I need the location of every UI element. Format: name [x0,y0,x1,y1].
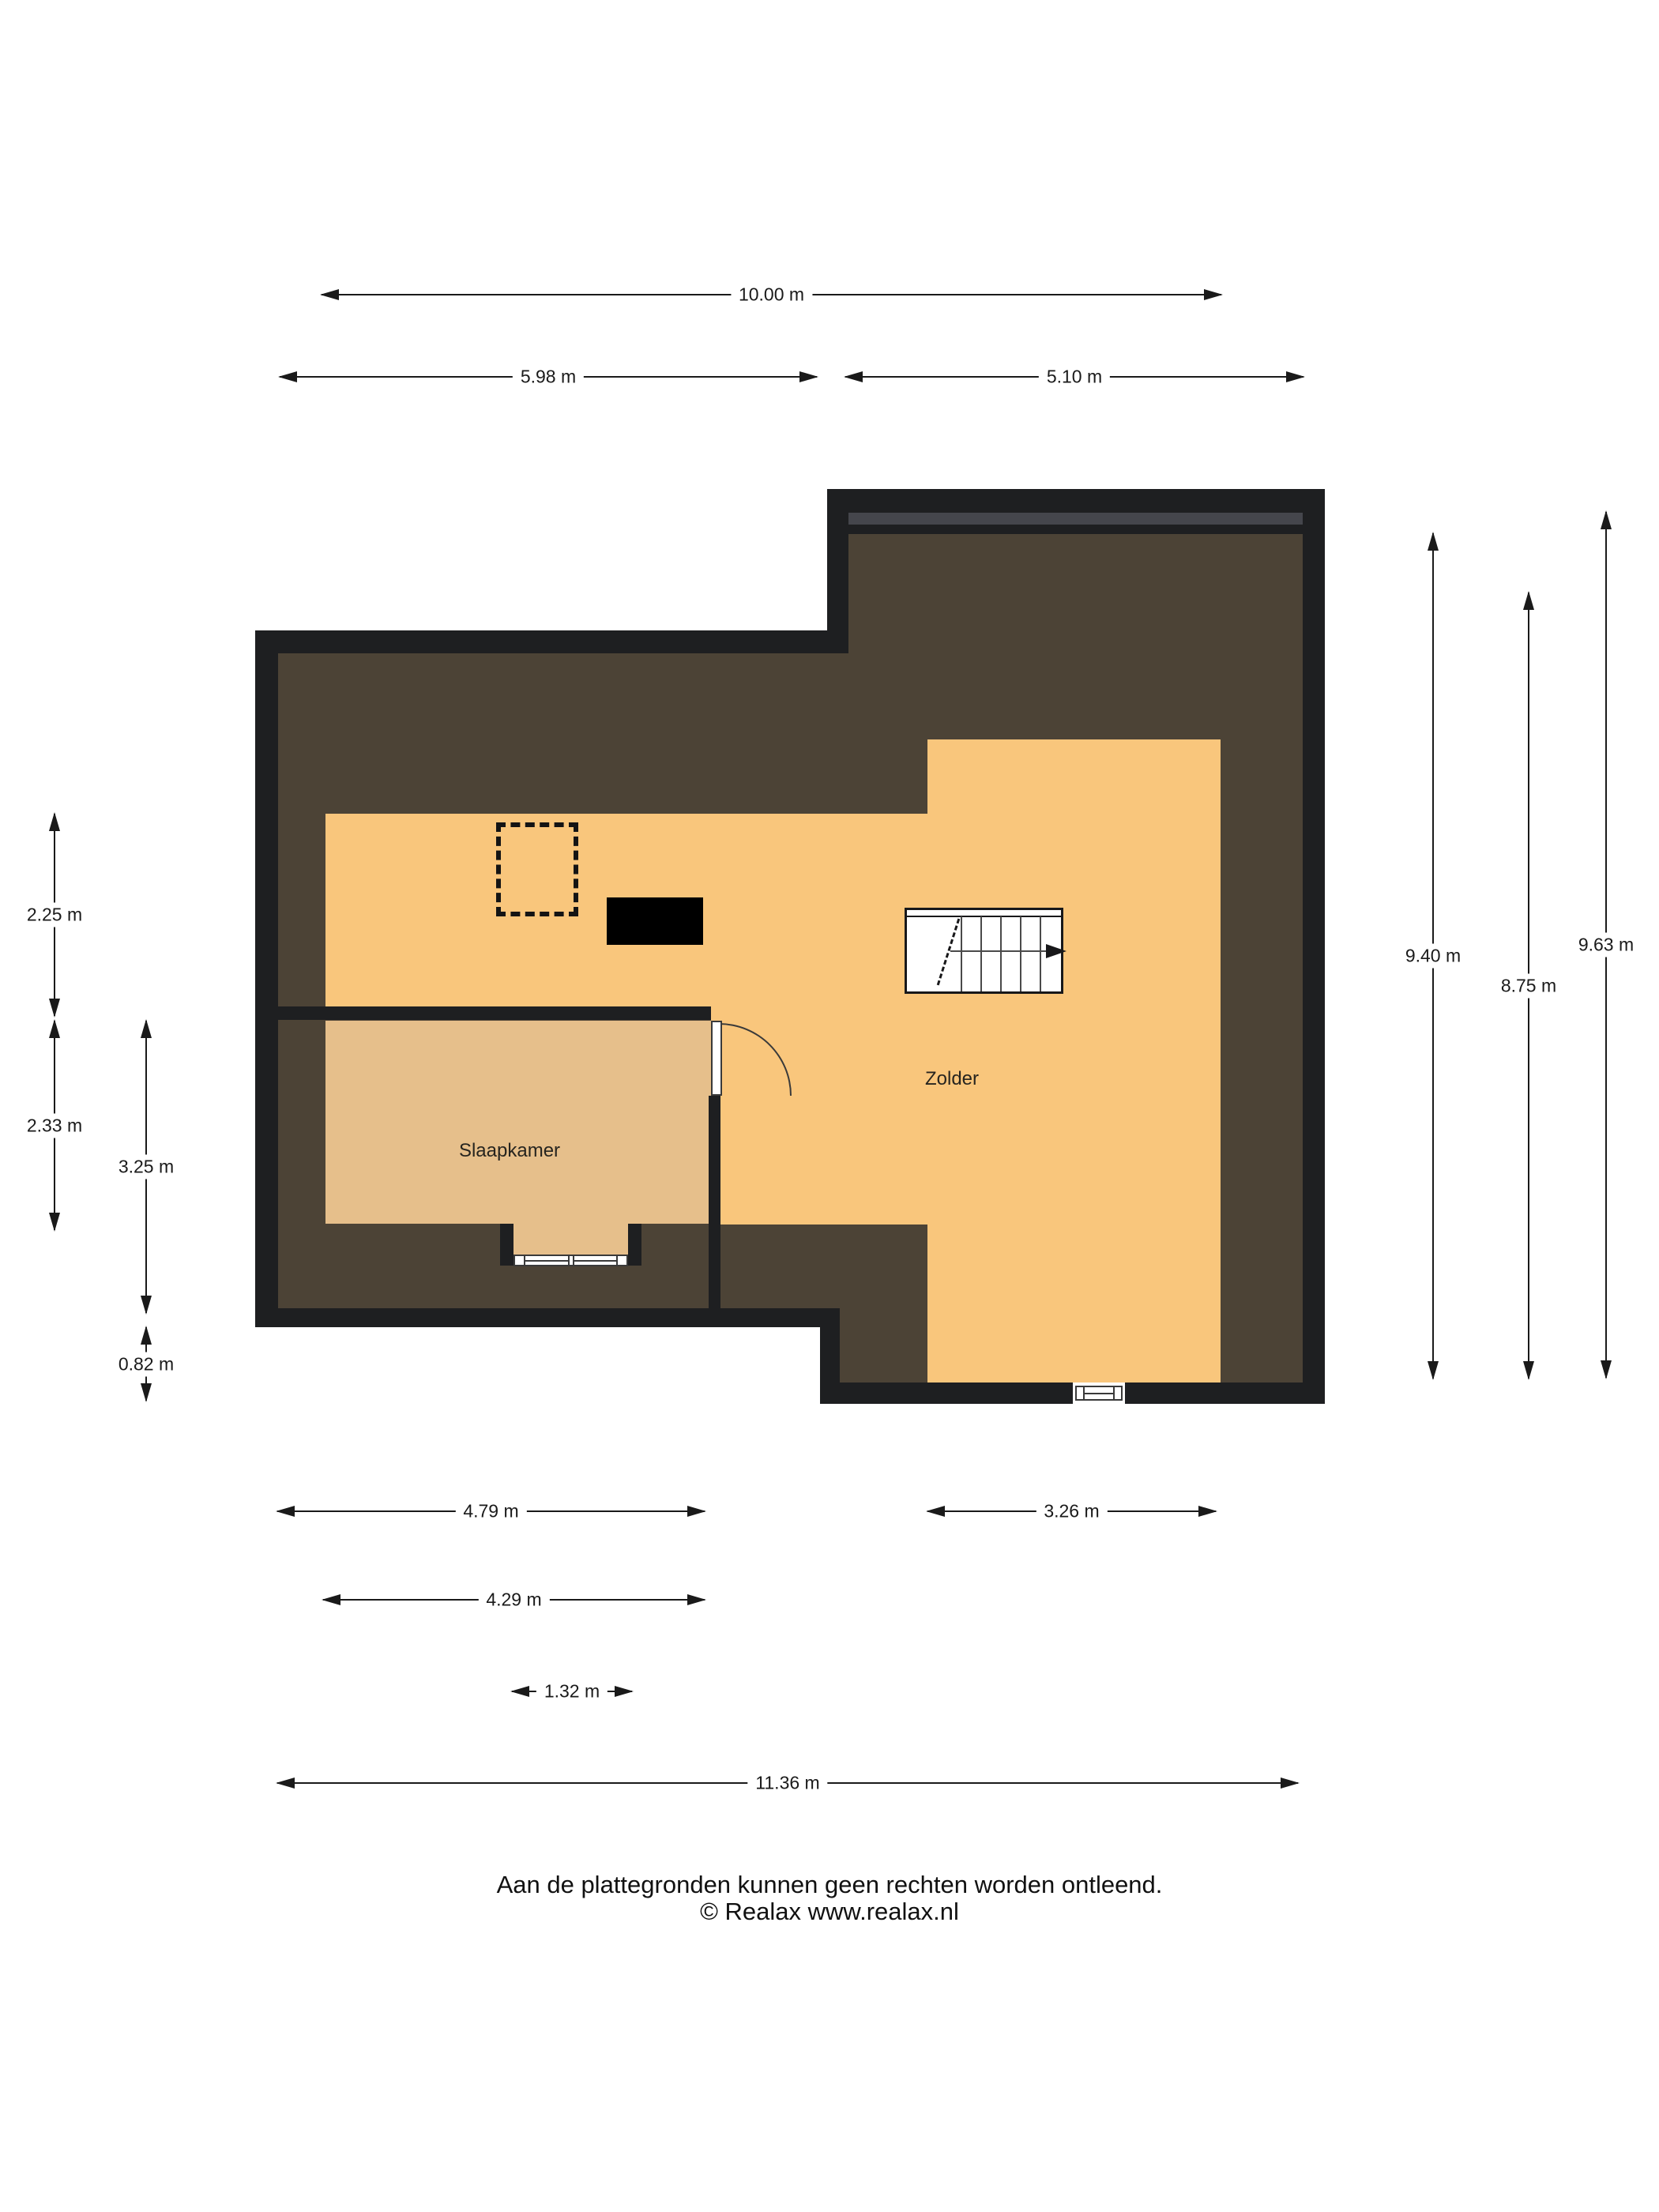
door-leaf [711,1021,722,1096]
dim-label: 0.82 m [111,1352,182,1376]
zolder-window-frame-right [1113,1387,1121,1399]
dim-label: 3.26 m [1036,1499,1107,1524]
bay-window-frame-right [616,1256,626,1265]
arrowhead-icon [49,1019,60,1038]
zolder-window-frame-left [1077,1387,1085,1399]
zolder-window [1075,1386,1123,1401]
dim-right-875: 8.75 m [1528,592,1529,1379]
floorplan-canvas: Zolder Slaapkamer 10.00 m 5.98 m 5.10 m … [0,0,1659,2212]
arrowhead-icon [276,1777,295,1789]
wall-slaapkamer-north [278,1006,711,1020]
wall-top-left-section [255,630,848,653]
dim-left-slaapkamer-depth: 2.33 m [54,1021,55,1230]
dim-label: 4.29 m [478,1588,549,1612]
slaapkamer-bay-floor [512,1224,630,1257]
dim-label: 8.75 m [1493,973,1564,998]
wall-bottom-left [255,1308,840,1327]
staircase-tread [961,916,962,991]
dim-label: 5.98 m [513,365,584,389]
arrowhead-icon [1428,1361,1439,1380]
roof-window-band [848,513,1303,525]
arrowhead-icon [49,1213,60,1232]
dim-left-step: 0.82 m [145,1327,147,1401]
arrowhead-icon [1281,1777,1300,1789]
dim-label: 3.25 m [111,1155,182,1179]
dim-bottom-zolder-width: 3.26 m [927,1510,1216,1512]
footer-copyright: © Realax www.realax.nl [0,1898,1659,1926]
dim-label: 5.10 m [1039,365,1110,389]
dim-top-overall: 10.00 m [322,294,1221,295]
arrowhead-icon [1601,510,1612,529]
dim-top-right-section: 5.10 m [845,376,1303,378]
bay-window-divider [568,1256,574,1265]
wall-bay-left [500,1224,513,1266]
arrowhead-icon [320,289,339,300]
wall-slaapkamer-east [709,1096,720,1327]
skylight-dashed-outline [496,822,578,916]
arrowhead-icon [799,371,818,382]
room-label-slaapkamer: Slaapkamer [459,1140,560,1162]
arrowhead-icon [1428,532,1439,551]
arrowhead-icon [1523,591,1534,610]
arrowhead-icon [926,1506,945,1517]
dim-left-zolder-depth: 2.25 m [54,814,55,1016]
dim-label: 2.33 m [19,1113,90,1138]
staircase-direction-line [950,950,1047,952]
arrowhead-icon [141,1326,152,1345]
room-label-zolder: Zolder [925,1068,979,1090]
arrowhead-icon [615,1686,634,1697]
dim-label: 4.79 m [455,1499,526,1524]
staircase-walkline [937,919,960,986]
footer-disclaimer: Aan de plattegronden kunnen geen rechten… [0,1871,1659,1899]
arrowhead-icon [1601,1360,1612,1379]
wall-top-right-section [827,489,1325,534]
staircase-tread [980,916,982,991]
wall-right [1303,489,1325,1404]
wall-left [255,630,278,1327]
arrowhead-icon [49,812,60,831]
dim-left-slaapkamer-outer: 3.25 m [145,1021,147,1313]
dim-label: 10.00 m [731,283,812,307]
arrowhead-icon [1286,371,1305,382]
staircase-stringer-line [907,916,1061,917]
dim-bottom-overall: 11.36 m [277,1782,1298,1784]
dim-bottom-floor-width: 4.29 m [323,1599,705,1601]
arrowhead-icon [322,1594,340,1605]
dim-right-963: 9.63 m [1605,512,1607,1378]
arrowhead-icon [1204,289,1223,300]
arrowhead-icon [844,371,863,382]
staircase-tread [1040,916,1041,991]
dim-label: 2.25 m [19,903,90,927]
dim-bottom-bay-width: 1.32 m [512,1691,632,1692]
dim-label: 1.32 m [536,1680,608,1704]
staircase-direction-arrow-icon [1046,944,1066,958]
staircase-tread [1020,916,1021,991]
arrowhead-icon [510,1686,529,1697]
slaapkamer-floor [325,1021,711,1224]
dim-label: 11.36 m [747,1771,827,1796]
arrowhead-icon [141,1383,152,1402]
arrowhead-icon [141,1296,152,1315]
zolder-floor-tall [927,739,1221,1382]
chimney-box [607,897,703,945]
wall-bay-right [628,1224,641,1266]
dim-label: 9.40 m [1398,944,1469,969]
arrowhead-icon [278,371,297,382]
arrowhead-icon [276,1506,295,1517]
arrowhead-icon [49,999,60,1018]
dim-top-left-section: 5.98 m [280,376,817,378]
dim-right-940: 9.40 m [1432,533,1434,1379]
dim-bottom-slaapkamer-width: 4.79 m [277,1510,705,1512]
arrowhead-icon [141,1019,152,1038]
bay-window [513,1255,628,1266]
staircase-tread [1000,916,1002,991]
arrowhead-icon [1523,1361,1534,1380]
dim-label: 9.63 m [1571,933,1642,957]
bay-window-frame-left [515,1256,525,1265]
wall-section-divider [827,489,848,653]
arrowhead-icon [1198,1506,1217,1517]
arrowhead-icon [687,1506,706,1517]
arrowhead-icon [687,1594,706,1605]
staircase [905,908,1063,994]
